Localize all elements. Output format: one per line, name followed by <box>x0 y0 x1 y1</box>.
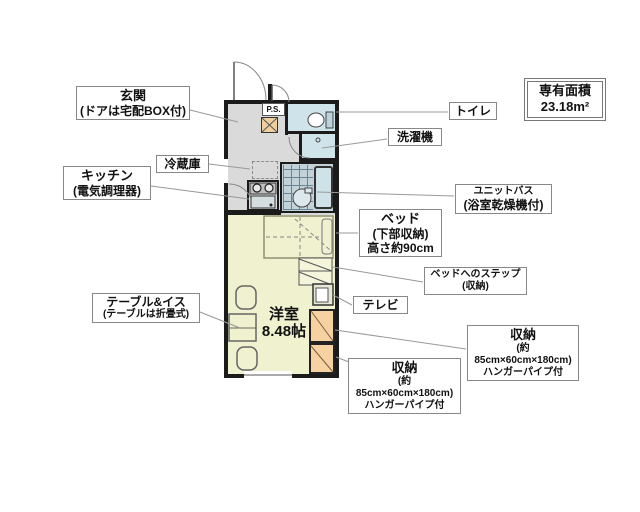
label-bed-note1: (下部収納) <box>362 227 439 241</box>
toilet-room <box>287 104 335 133</box>
bath-tile-floor <box>283 165 313 210</box>
leader-bed-step <box>333 267 423 282</box>
window-bottom <box>244 371 292 379</box>
exclusive-area-title: 専有面積 <box>528 83 602 99</box>
window-left <box>224 159 228 183</box>
refrigerator-space <box>252 161 278 179</box>
label-entrance: 玄関 (ドアは宅配BOX付) <box>76 86 190 120</box>
label-table-note: (テーブルは折畳式) <box>95 309 197 321</box>
label-unit-bath-note: (浴室乾燥機付) <box>458 198 549 212</box>
label-refrigerator: 冷蔵庫 <box>156 155 209 173</box>
label-storage-bottom: 収納 (約85cm×60cm×180cm) ハンガーパイプ付 <box>348 358 461 414</box>
label-storage-bottom-note: ハンガーパイプ付 <box>351 400 458 412</box>
bathtub <box>314 166 333 209</box>
floor-plan-canvas: P.S. 洋室 8.48帖 <box>0 0 640 512</box>
label-bed-note2: 高さ約90cm <box>362 241 439 255</box>
label-storage-right-title: 収納 <box>470 327 576 343</box>
label-bed-step-title: ベッドへのステップ <box>427 269 524 281</box>
label-storage-right: 収納 (約85cm×60cm×180cm) ハンガーパイプ付 <box>467 325 579 381</box>
washing-machine-space <box>302 134 335 160</box>
label-storage-bottom-title: 収納 <box>351 360 458 376</box>
label-tv-text: テレビ <box>356 298 405 312</box>
exclusive-area-value: 23.18m² <box>528 99 602 115</box>
leader-storage-right <box>335 330 466 349</box>
label-toilet: トイレ <box>449 102 497 120</box>
wall-toilet-bottom <box>285 131 335 134</box>
label-kitchen-title: キッチン <box>66 168 148 184</box>
label-bed: ベッド (下部収納) 高さ約90cm <box>359 209 442 257</box>
label-kitchen: キッチン (電気調理器) <box>63 166 151 200</box>
entrance-door-swing-arc <box>234 62 266 100</box>
label-storage-right-size: (約85cm×60cm×180cm) <box>470 343 576 367</box>
pipe-space-label: P.S. <box>262 103 285 116</box>
label-entrance-note: (ドアは宅配BOX付) <box>79 104 187 118</box>
label-tv: テレビ <box>353 296 408 314</box>
label-unit-bath-title: ユニットバス <box>458 186 549 198</box>
label-storage-right-note: ハンガーパイプ付 <box>470 367 576 379</box>
exclusive-area-box: 専有面積 23.18m² <box>524 78 606 121</box>
label-bed-title: ベッド <box>362 211 439 227</box>
label-bed-step-note: (収納) <box>427 281 524 293</box>
label-entrance-title: 玄関 <box>79 88 187 104</box>
label-table-chairs: テーブル&イス (テーブルは折畳式) <box>92 293 200 323</box>
room-size: 8.48帖 <box>246 323 322 340</box>
label-table-title: テーブル&イス <box>95 295 197 309</box>
room-name-block: 洋室 8.48帖 <box>246 306 322 340</box>
wall-stub-entrance <box>268 84 272 102</box>
exclusive-area-inner: 専有面積 23.18m² <box>527 81 603 118</box>
label-bed-step: ベッドへのステップ (収納) <box>424 267 527 295</box>
pipe-space-shaft <box>261 117 278 133</box>
storage-closet-lower <box>309 343 335 374</box>
label-kitchen-note: (電気調理器) <box>66 184 148 198</box>
label-toilet-text: トイレ <box>452 104 494 118</box>
wall-washer-left <box>299 134 302 160</box>
room-name: 洋室 <box>246 306 322 323</box>
label-washing-machine: 洗濯機 <box>388 128 442 146</box>
label-unit-bath: ユニットバス (浴室乾燥機付) <box>455 184 552 214</box>
label-storage-bottom-size: (約85cm×60cm×180cm) <box>351 376 458 400</box>
label-washer-text: 洗濯機 <box>391 130 439 144</box>
kitchen-stove-unit <box>247 180 279 211</box>
label-refrigerator-text: 冷蔵庫 <box>159 157 206 171</box>
